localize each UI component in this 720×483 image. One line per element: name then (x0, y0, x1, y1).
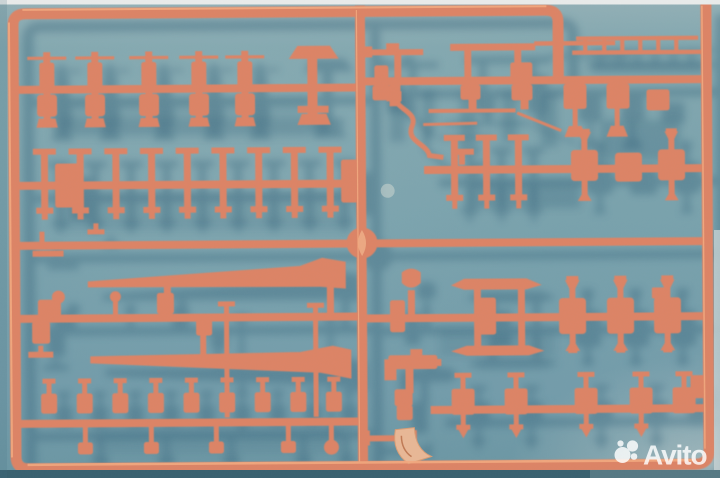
svg-text:Avito: Avito (643, 440, 707, 471)
